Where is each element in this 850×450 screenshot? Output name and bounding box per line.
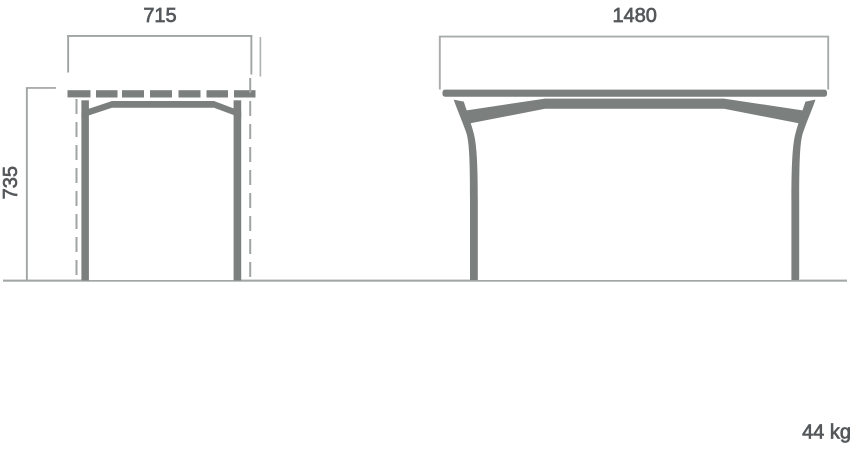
svg-text:735: 735 (0, 166, 22, 199)
svg-text:44 kg: 44 kg (802, 422, 850, 444)
svg-text:1480: 1480 (612, 5, 657, 27)
svg-text:715: 715 (143, 5, 176, 27)
